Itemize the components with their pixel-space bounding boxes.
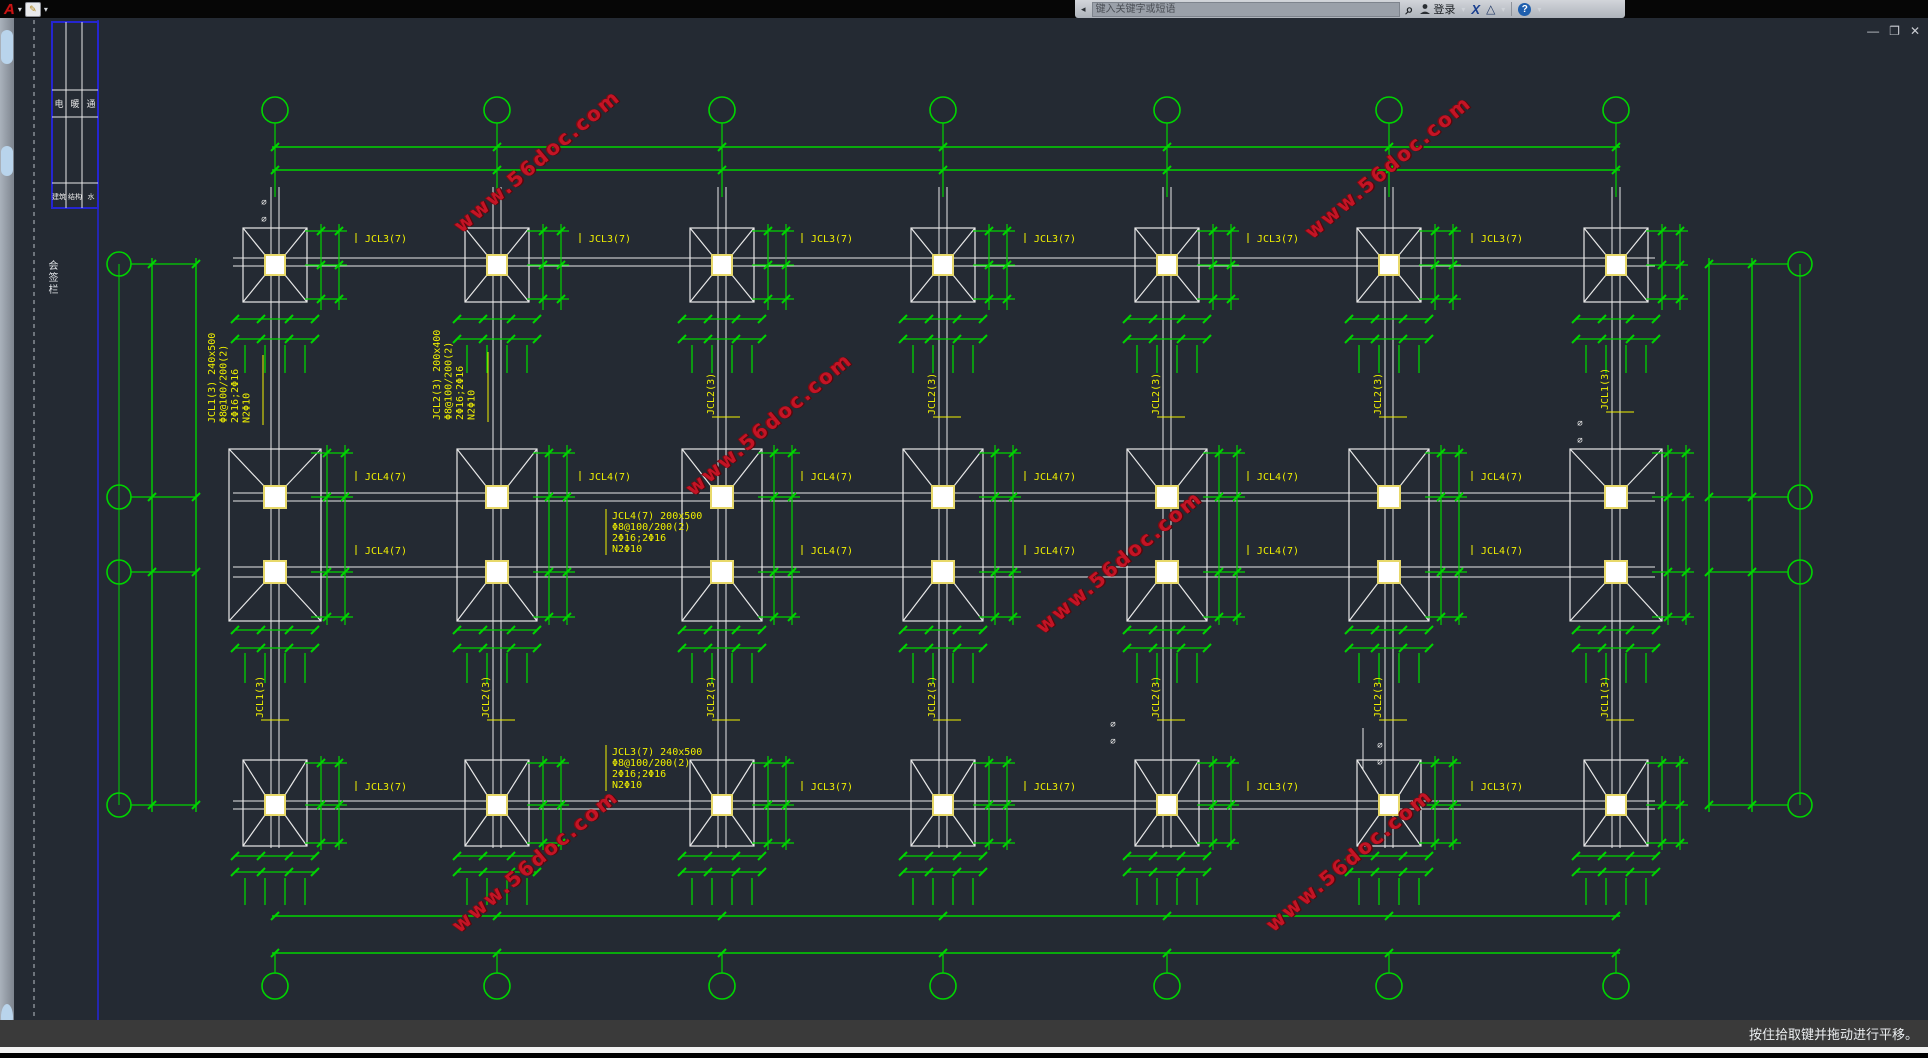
foundation-plan-drawing: JCL3(7)JCL3(7)JCL3(7)JCL3(7)JCL3(7)JCL3(… [0,18,1928,1020]
a360-caret-icon[interactable]: ▾ [1501,5,1505,14]
dimension-lines [231,224,1694,905]
svg-text:JCL4(7): JCL4(7) [1257,546,1299,557]
beam-labels: JCL3(7)JCL3(7)JCL3(7)JCL3(7)JCL3(7)JCL3(… [207,233,1634,793]
svg-text:Φ8@100/200(2): Φ8@100/200(2) [219,345,230,423]
workspace-caret-icon[interactable]: ▾ [44,5,48,14]
titleblock-caption: 会签栏 [44,260,59,296]
svg-text:暖: 暖 [70,98,79,110]
svg-text:水: 水 [88,192,95,201]
pile-caps [229,228,1662,846]
svg-text:JCL3(7): JCL3(7) [811,234,853,245]
svg-text:JCL4(7): JCL4(7) [1257,472,1299,483]
svg-text:JCL3(7): JCL3(7) [1034,234,1076,245]
svg-text:2Φ16;2Φ16: 2Φ16;2Φ16 [612,769,666,780]
svg-text:JCL3(7): JCL3(7) [589,234,631,245]
svg-text:2Φ16;2Φ16: 2Φ16;2Φ16 [230,369,241,423]
app-titlebar: A ▾ ✎ ▾ ◂ ⌕ 登录 ▾ X △ ▾ ? ▾ [0,0,1928,18]
svg-text:建筑: 建筑 [52,192,66,201]
workspace-icon[interactable]: ✎ [25,2,41,17]
svg-text:JCL4(7): JCL4(7) [1034,546,1076,557]
svg-text:2Φ16;2Φ16: 2Φ16;2Φ16 [455,366,466,420]
svg-text:JCL4(7): JCL4(7) [365,546,407,557]
user-icon [1419,3,1431,15]
svg-text:JCL4(7): JCL4(7) [1481,546,1523,557]
svg-text:JCL1(3): JCL1(3) [255,676,266,718]
svg-text:⌀: ⌀ [261,198,267,208]
svg-text:JCL3(7): JCL3(7) [365,234,407,245]
svg-text:JCL2(3): JCL2(3) [706,373,717,415]
app-menu-caret-icon[interactable]: ▾ [18,5,22,14]
sign-in-label: 登录 [1433,1,1455,17]
svg-text:Φ8@100/200(2): Φ8@100/200(2) [444,342,455,420]
svg-text:JCL2(3): JCL2(3) [481,676,492,718]
svg-text:⌀: ⌀ [1377,758,1383,768]
svg-text:⌀: ⌀ [1577,436,1583,446]
svg-text:JCL4(7): JCL4(7) [811,546,853,557]
sign-in-caret-icon[interactable]: ▾ [1461,5,1465,14]
infocenter-toolbar: ◂ ⌕ 登录 ▾ X △ ▾ ? ▾ [1075,0,1625,18]
svg-text:JCL2(3) 200x400: JCL2(3) 200x400 [432,330,443,420]
svg-text:JCL2(3): JCL2(3) [1151,676,1162,718]
svg-text:电: 电 [54,98,63,110]
svg-text:JCL2(3): JCL2(3) [1373,676,1384,718]
svg-text:JCL4(7): JCL4(7) [811,472,853,483]
svg-text:N2Φ10: N2Φ10 [612,780,642,791]
svg-text:JCL4(7): JCL4(7) [589,472,631,483]
svg-text:N2Φ10: N2Φ10 [242,393,253,423]
svg-text:JCL1(3): JCL1(3) [1600,368,1611,410]
cad-viewport[interactable]: JCL3(7)JCL3(7)JCL3(7)JCL3(7)JCL3(7)JCL3(… [0,18,1928,1020]
svg-text:JCL4(7): JCL4(7) [1034,472,1076,483]
search-input[interactable] [1092,2,1400,17]
svg-text:2Φ16;2Φ16: 2Φ16;2Φ16 [612,533,666,544]
svg-text:JCL3(7): JCL3(7) [1257,782,1299,793]
background-window-icon [1,30,13,64]
axis-grid [107,97,1812,999]
svg-text:JCL4(7): JCL4(7) [365,472,407,483]
svg-text:JCL3(7): JCL3(7) [811,782,853,793]
infocenter-separator [1511,2,1512,16]
titleblock: 电暖通建筑结构水 [34,20,98,1020]
svg-text:JCL1(3): JCL1(3) [1600,676,1611,718]
help-caret-icon[interactable]: ▾ [1537,5,1541,14]
svg-text:JCL2(3): JCL2(3) [927,373,938,415]
svg-text:N2Φ10: N2Φ10 [467,390,478,420]
minimize-button[interactable]: — [1867,24,1879,38]
infocenter-collapse-icon[interactable]: ◂ [1081,4,1086,15]
close-button[interactable]: ✕ [1910,24,1920,38]
drawing-window-controls: — ❐ ✕ [1867,24,1920,38]
svg-text:JCL3(7): JCL3(7) [1257,234,1299,245]
help-icon[interactable]: ? [1518,3,1531,16]
status-hint: 按住拾取键并拖动进行平移。 [1749,1024,1918,1043]
svg-text:JCL3(7): JCL3(7) [1481,234,1523,245]
svg-text:JCL4(7) 200x500: JCL4(7) 200x500 [612,511,702,522]
quick-access-toolbar: A ▾ ✎ ▾ [4,0,48,18]
svg-text:JCL2(3): JCL2(3) [927,676,938,718]
svg-text:JCL3(7): JCL3(7) [1034,782,1076,793]
svg-text:JCL2(3): JCL2(3) [1373,373,1384,415]
svg-text:⌀: ⌀ [1377,741,1383,751]
exchange-apps-icon[interactable]: X [1471,2,1480,17]
svg-text:JCL3(7) 240x500: JCL3(7) 240x500 [612,747,702,758]
svg-text:结构: 结构 [68,192,82,201]
svg-text:⌀: ⌀ [1577,419,1583,429]
sign-in-button[interactable]: 登录 [1419,1,1455,17]
svg-text:⌀: ⌀ [1110,737,1116,747]
search-icon[interactable]: ⌕ [1406,1,1414,18]
restore-button[interactable]: ❐ [1889,24,1900,38]
svg-text:JCL2(3): JCL2(3) [1151,373,1162,415]
background-window-icon [1,146,13,176]
background-window-edge [0,18,14,1020]
svg-text:通: 通 [86,99,95,110]
svg-text:JCL3(7): JCL3(7) [1481,782,1523,793]
bottom-strip [0,1053,1928,1058]
svg-text:JCL2(3): JCL2(3) [706,676,717,718]
foundation-beams [233,187,1655,848]
svg-text:Φ8@100/200(2): Φ8@100/200(2) [612,758,690,769]
svg-text:⌀: ⌀ [261,215,267,225]
a360-icon[interactable]: △ [1486,2,1495,16]
status-bar: 按住拾取键并拖动进行平移。 [0,1020,1928,1047]
svg-text:⌀: ⌀ [1110,720,1116,730]
svg-text:Φ8@100/200(2): Φ8@100/200(2) [612,522,690,533]
svg-text:JCL1(3) 240x500: JCL1(3) 240x500 [207,333,218,423]
svg-text:N2Φ10: N2Φ10 [612,544,642,555]
app-logo-icon[interactable]: A [4,2,15,17]
svg-text:JCL3(7): JCL3(7) [365,782,407,793]
svg-text:JCL4(7): JCL4(7) [1481,472,1523,483]
